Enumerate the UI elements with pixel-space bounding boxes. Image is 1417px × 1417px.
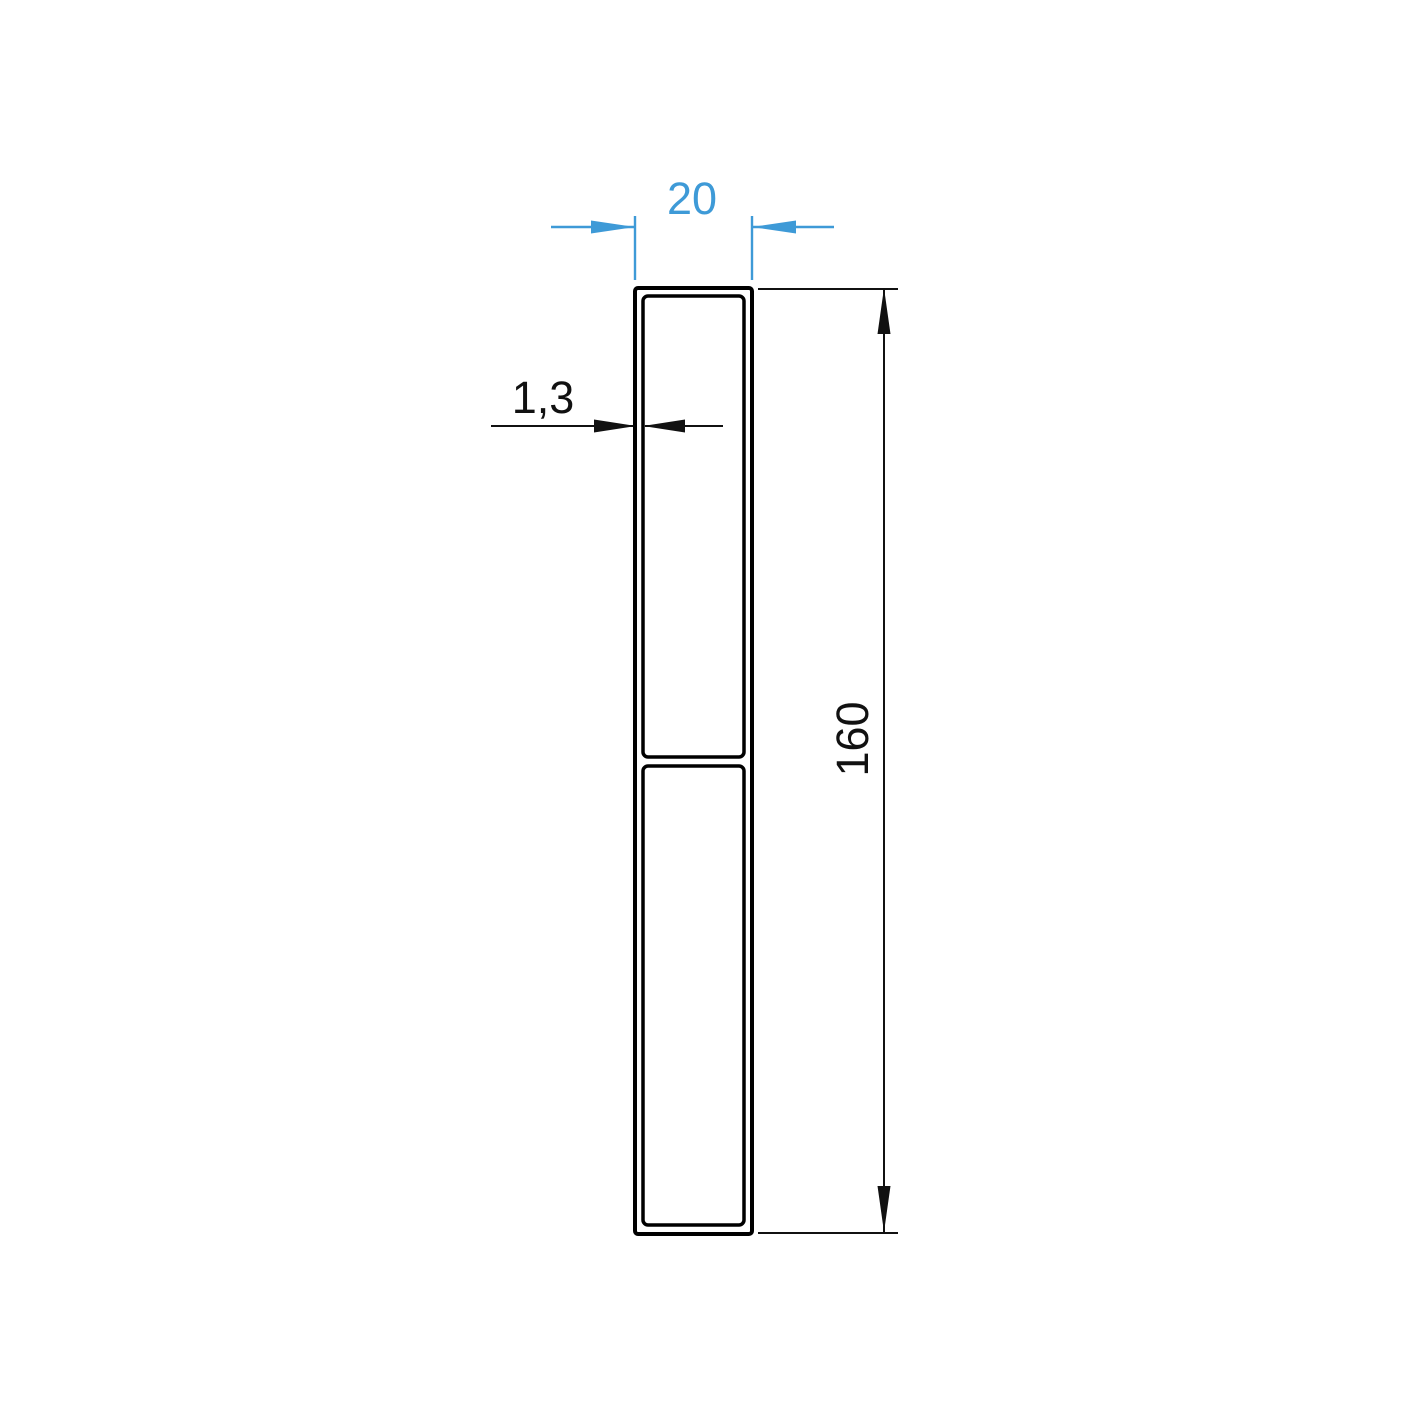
wall-arrowhead-left-icon xyxy=(594,420,636,433)
profile-inner-cavity-top xyxy=(643,296,744,757)
height-arrowhead-top-icon xyxy=(878,288,891,334)
width-dimension-label: 20 xyxy=(667,173,717,224)
width-arrowhead-left-icon xyxy=(591,221,635,234)
width-arrowhead-right-icon xyxy=(752,221,796,234)
profile-cross-section xyxy=(635,288,752,1234)
dimension-wall-thickness: 1,3 xyxy=(491,372,723,433)
height-arrowhead-bottom-icon xyxy=(878,1186,891,1232)
dimension-height: 160 xyxy=(758,288,898,1233)
dimension-width: 20 xyxy=(551,173,834,280)
wall-arrowhead-right-icon xyxy=(643,420,685,433)
wall-thickness-label: 1,3 xyxy=(512,372,575,423)
height-dimension-label: 160 xyxy=(827,701,878,776)
drawing-canvas: 20 1,3 160 xyxy=(0,0,1417,1417)
profile-inner-cavity-bottom xyxy=(643,766,744,1225)
technical-drawing: 20 1,3 160 xyxy=(0,0,1417,1417)
profile-outer-contour xyxy=(635,288,752,1234)
